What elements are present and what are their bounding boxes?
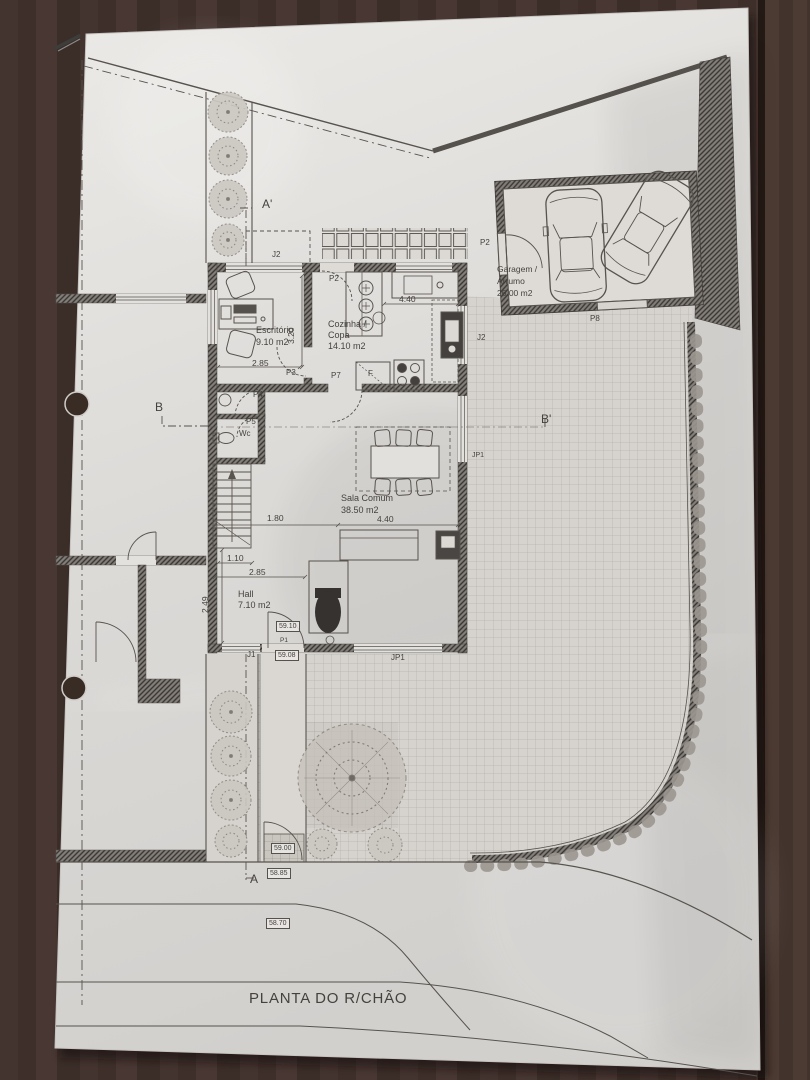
gate-label-p8: P8 [590,314,600,323]
drawing-title: PLANTA DO R/CHÃO [249,990,407,1007]
window-label-j2-side: J2 [477,333,485,342]
door-label-p7: P7 [331,371,341,380]
section-marker-a: A [250,872,258,886]
photo-of-floor-plan: A' A B B' J2 P2 P2 P8 P3 P7 F J2 P4 P5 W… [0,0,810,1080]
room-area-garagem: 26.00 m2 [497,288,532,298]
floor-plan-drawing [0,0,810,1080]
window-label-jp1-side: JP1 [472,452,484,459]
entry-path [260,654,306,862]
door-label-p2-kitchen: P2 [329,274,339,283]
room-name-cozinha: Cozinha / [328,319,366,329]
dim-sala-left: 1.80 [267,513,284,523]
section-marker-b-prime: B' [541,412,551,426]
window-label-j1: J1 [247,650,255,659]
dim-hall-depth: 2.49 [200,596,210,613]
section-marker-a-prime: A' [262,197,272,211]
level-entry: 59.08 [275,650,299,661]
room-name-garagem: Garagem / [497,264,537,274]
room-area-escritorio: 9.10 m2 [256,337,289,347]
door-label-p1: P1 [280,637,288,644]
level-sidewalk: 58.85 [267,868,291,879]
dim-cozinha-width: 4.40 [399,294,416,304]
dim-hall-window: 1.10 [227,553,244,563]
big-tree [298,724,406,832]
section-marker-b: B [155,400,163,414]
window-label-jp1-front: JP1 [391,653,405,662]
room-name-hall: Hall [238,589,254,599]
staple [56,36,80,51]
room-area-cozinha: 14.10 m2 [328,341,366,351]
level-street: 58.70 [266,918,290,929]
dim-sala-width: 4.40 [377,514,394,524]
window-label-j2-top: J2 [272,250,280,259]
pergola-grid [322,228,468,259]
dim-escritorio-width: 2.85 [252,358,269,368]
door-label-p5: P5 [246,417,256,426]
room-name-cozinha-2: Copa [328,330,350,340]
door-label-p2-garage: P2 [480,238,490,247]
room-area-sala: 38.50 m2 [341,505,379,515]
level-hall: 59.10 [276,621,300,632]
door-label-p3: P3 [286,368,296,377]
room-name-sala: Sala Comum [341,493,393,503]
fridge-label: F [368,369,373,378]
wc-label: Wc [239,429,251,438]
dim-escritorio-depth: 3.20 [286,327,296,344]
level-path: 59.00 [271,843,295,854]
door-label-p4: P4 [253,390,263,399]
dim-hall-width: 2.85 [249,567,266,577]
room-area-hall: 7.10 m2 [238,600,271,610]
room-name-garagem-2: Arrumo [497,276,525,286]
